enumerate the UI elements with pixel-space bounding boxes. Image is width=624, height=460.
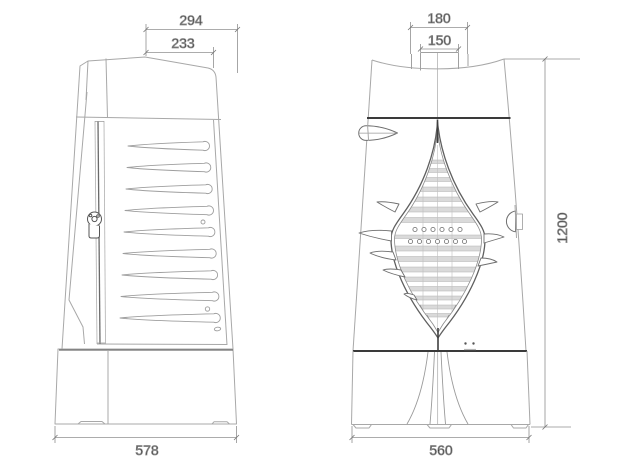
front-base [352, 342, 531, 428]
grill-slat [392, 257, 484, 262]
grill-slat [392, 160, 484, 164]
pedestal-curve [441, 352, 446, 424]
vent-slot [123, 249, 216, 258]
front-left-edge [353, 60, 372, 351]
front-top-curve [372, 59, 504, 69]
vent-slot [125, 206, 213, 215]
air-hole [435, 239, 439, 243]
grill-slat [392, 218, 484, 223]
dim-extension-line [55, 426, 237, 443]
vent-slot [122, 270, 218, 279]
dimension-annotations: 294 233 578 180 150 [53, 10, 581, 458]
thorn-left [377, 202, 399, 212]
vent-slot [127, 163, 211, 172]
grill-slat [392, 235, 484, 239]
vent-slot [121, 292, 219, 301]
dim-label-side-top-outer: 294 [179, 12, 203, 28]
air-hole [444, 239, 448, 243]
dim-label-front-flue-inner: 150 [428, 32, 452, 48]
air-hole [422, 227, 426, 231]
air-hole [453, 239, 457, 243]
grill-slat [392, 187, 484, 192]
air-hole [426, 239, 430, 243]
door-strip-line [104, 121, 106, 344]
dim-label-side-top-inner: 233 [171, 35, 195, 51]
dim-label-side-base-width: 578 [135, 442, 159, 458]
thorn-right [476, 202, 498, 212]
dim-front-overall-height: 1200 [504, 57, 580, 430]
vent-slot [124, 227, 215, 236]
flue-collar-inner [421, 53, 459, 71]
latch-bolt [89, 214, 92, 217]
front-base-foot [427, 425, 452, 429]
air-hole [449, 227, 453, 231]
handle-right-bracket [517, 214, 523, 230]
front-base-foot [511, 425, 529, 429]
air-hole [458, 227, 462, 231]
side-panel-bottom-line [97, 344, 227, 345]
pedestal-curve [430, 352, 435, 424]
vent-slot [120, 313, 220, 322]
pedestal-curve [447, 352, 468, 424]
grill-slat [392, 267, 484, 272]
side-base-outline [55, 349, 237, 424]
stove-orthographic-drawing: 294 233 578 180 150 [0, 0, 624, 460]
thorn-right [484, 234, 504, 243]
air-hole [413, 227, 417, 231]
side-body-outline [62, 57, 233, 349]
thorn-left [370, 251, 396, 260]
panel-screw-hole [201, 220, 205, 224]
grill-slat [392, 296, 484, 300]
dim-front-base-width: 560 [350, 426, 532, 458]
handle-right-dshape [506, 211, 515, 232]
window [359, 120, 504, 351]
thorn-left [359, 230, 392, 241]
side-top-band-vertical [106, 59, 108, 119]
grill-slat [392, 178, 484, 182]
air-hole [408, 239, 412, 243]
dim-label-front-flue-outer: 180 [427, 10, 451, 26]
tail-curve [420, 305, 438, 335]
side-glass-edge [69, 92, 87, 344]
grill-slat [392, 314, 484, 318]
dim-front-flue-inner: 150 [418, 32, 461, 52]
grill-slat [392, 246, 484, 251]
air-hole [462, 239, 466, 243]
vent-slot [128, 141, 209, 150]
side-vent-slots [120, 141, 221, 331]
dim-side-base-width: 578 [53, 426, 240, 458]
base-mark-dot [472, 342, 474, 344]
front-base-right-edge [527, 351, 530, 425]
tail-curve [439, 305, 457, 335]
side-top-band-divider [76, 117, 221, 120]
air-hole [431, 227, 435, 231]
side-view [55, 57, 237, 424]
side-door-handle-left [359, 126, 398, 142]
dim-label-front-base-width: 560 [429, 442, 453, 458]
latch-knob-inner [92, 216, 97, 221]
latch-bracket [89, 224, 100, 238]
air-hole [417, 239, 421, 243]
air-hole [440, 227, 444, 231]
pedestal-curve [407, 352, 428, 424]
flue-collar-outer [412, 54, 469, 69]
grill-slat [392, 197, 484, 202]
base-mark-dot [464, 342, 466, 344]
panel-oval-hole [214, 327, 221, 331]
front-base-left-edge [352, 351, 354, 425]
side-base [55, 349, 237, 424]
vent-slot [126, 184, 212, 193]
grill-slat [392, 169, 484, 173]
front-view [352, 52, 531, 428]
panel-screw-hole [205, 307, 209, 311]
window-outline-inner [395, 128, 482, 333]
technical-drawing-canvas: 294 233 578 180 150 [0, 0, 624, 460]
front-base-foot [353, 425, 372, 429]
dim-label-front-overall-height: 1200 [554, 212, 570, 243]
side-panel-inner-edge [214, 120, 228, 345]
dim-extension-line [352, 426, 529, 443]
side-door-handle-right [506, 205, 522, 238]
side-view-body-outline [62, 57, 233, 349]
thorn-right [478, 258, 497, 266]
grill-slat [392, 305, 484, 309]
latch-bolt [97, 215, 100, 218]
